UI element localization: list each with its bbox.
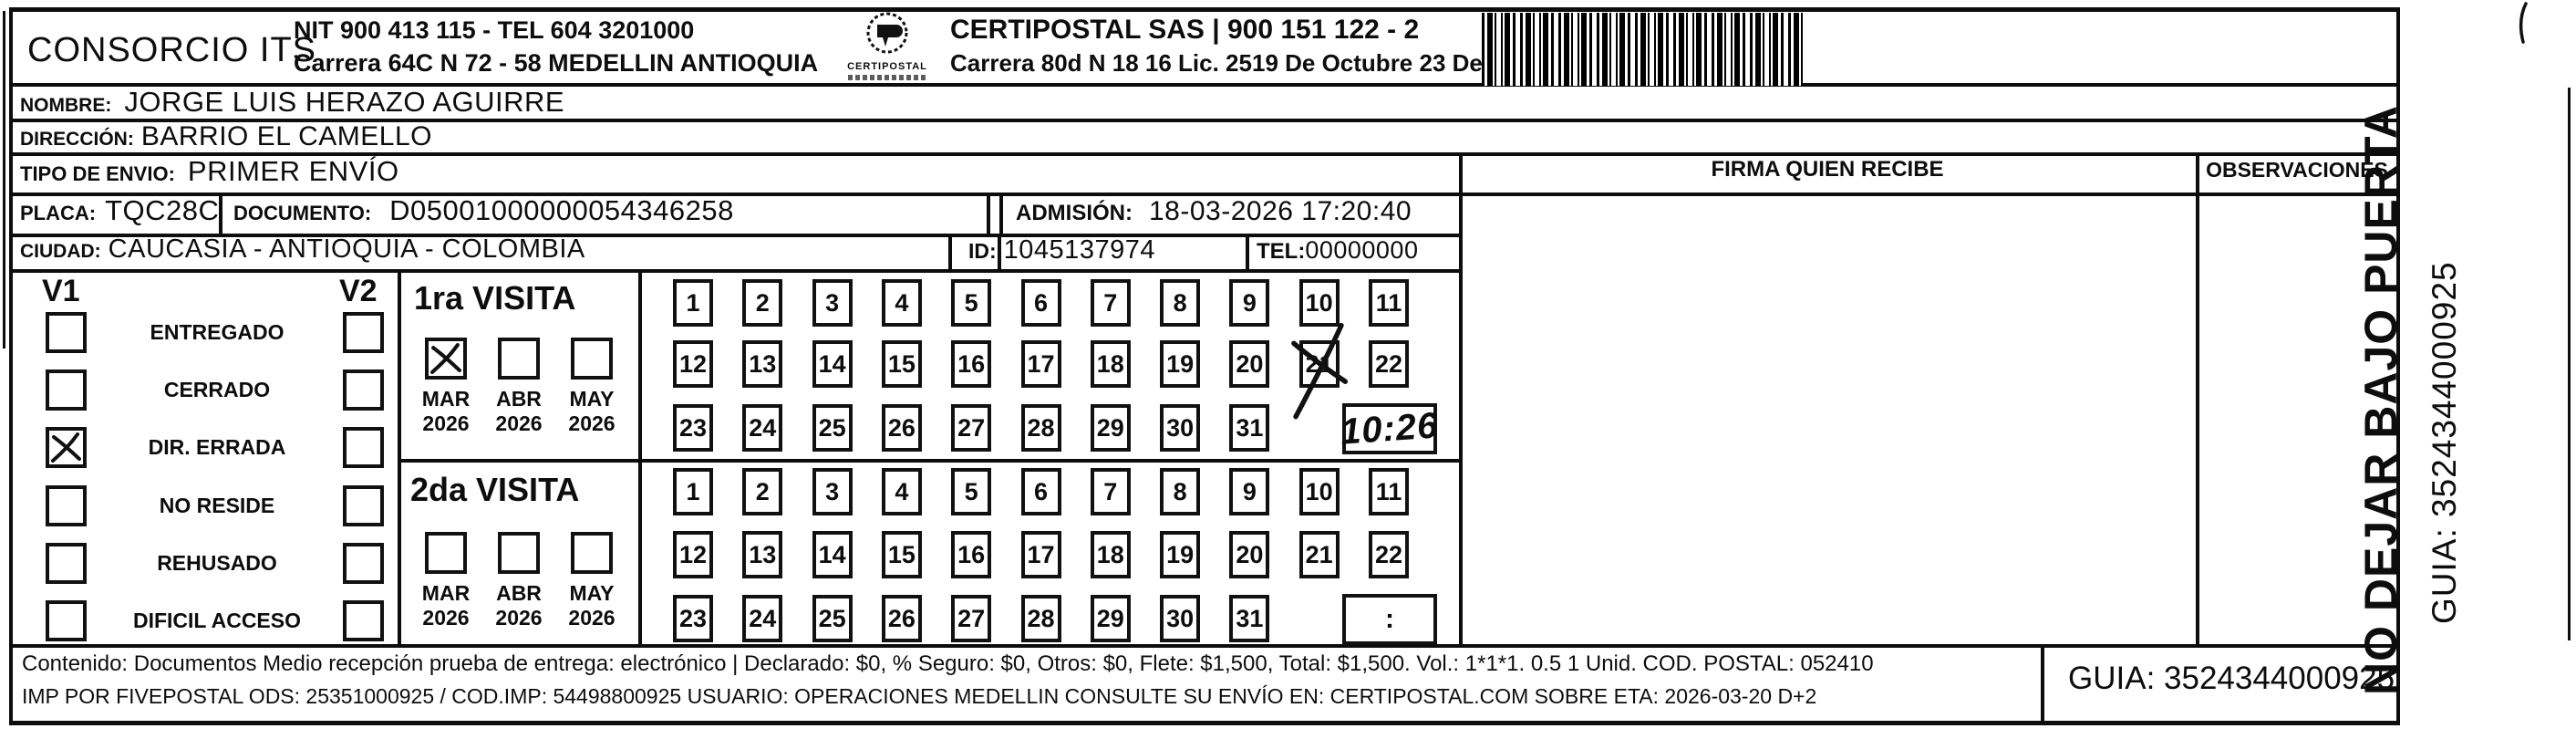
status-row-dir-errada: DIR. ERRADA — [13, 427, 398, 469]
ciudad-value: CAUCASIA - ANTIOQUIA - COLOMBIA — [109, 234, 585, 265]
footer-contenido-line: Contenido: Documentos Medio recepción pr… — [22, 651, 1874, 677]
visit2-day-31-box[interactable]: 31 — [1229, 595, 1269, 642]
visit2-day-19-box[interactable]: 19 — [1160, 531, 1200, 578]
month-year: 2026 — [422, 606, 469, 630]
visit1-day-22-box[interactable]: 22 — [1369, 340, 1409, 388]
visit2-day-9-box[interactable]: 9 — [1229, 468, 1269, 515]
visit2-day-14-box[interactable]: 14 — [812, 531, 853, 578]
visit1-day-26-box[interactable]: 26 — [882, 404, 922, 452]
placa-label: PLACA: — [20, 202, 96, 225]
month-may-checkbox[interactable] — [571, 532, 613, 574]
month-label: ABR — [496, 581, 542, 606]
visit2-time-box[interactable]: : — [1342, 594, 1437, 645]
visit1-day-31-box[interactable]: 31 — [1229, 404, 1269, 452]
visit1-day-6-box[interactable]: 6 — [1021, 279, 1061, 327]
documento-value: D05001000000054346258 — [389, 194, 734, 227]
visit2-day-15-box[interactable]: 15 — [882, 531, 922, 578]
status-label-dir-errada: DIR. ERRADA — [97, 435, 337, 460]
v1-no-reside-checkbox[interactable] — [46, 485, 87, 526]
visit1-day-7-box[interactable]: 7 — [1091, 279, 1131, 327]
line — [9, 269, 1463, 273]
v2-dir-errada-checkbox[interactable] — [343, 427, 384, 468]
visit1-time-value: 10:26 — [1340, 405, 1440, 453]
direccion-value: BARRIO EL CAMELLO — [141, 121, 432, 152]
status-label-cerrado: CERRADO — [97, 378, 337, 402]
visit1-months: MAR2026ABR2026MAY2026 — [401, 338, 638, 453]
visit2-day-5-box[interactable]: 5 — [951, 468, 991, 515]
month-year: 2026 — [422, 411, 469, 436]
admision-field: ADMISIÓN: 18-03-2026 17:20:40 — [1016, 196, 1412, 227]
visit2-day-22-box[interactable]: 22 — [1369, 531, 1409, 578]
visit2-months: MAR2026ABR2026MAY2026 — [401, 532, 638, 647]
v1-dir-errada-checkbox[interactable] — [46, 427, 87, 468]
footer-guia: GUIA: 3524344000925 — [2068, 661, 2395, 697]
visit1-day-30-box[interactable]: 30 — [1160, 404, 1200, 452]
v2-dificil-acceso-checkbox[interactable] — [343, 600, 384, 641]
visit1-day-1-box[interactable]: 1 — [673, 279, 713, 327]
visit2-day-8-box[interactable]: 8 — [1160, 468, 1200, 515]
logo-caption: CERTIPOSTAL — [837, 61, 937, 72]
visit2-day-25-box[interactable]: 25 — [812, 595, 853, 642]
ciudad-label: CIUDAD: — [20, 241, 101, 263]
id-label: ID: — [968, 239, 997, 264]
month-mar-checkbox[interactable] — [425, 532, 467, 574]
month-mar-checkbox[interactable] — [425, 338, 467, 380]
scan-edge-artifact — [2568, 88, 2571, 640]
month-label: MAY — [570, 581, 615, 606]
company-nit-tel: NIT 900 413 115 - TEL 604 3201000 — [294, 16, 694, 45]
line — [219, 193, 222, 237]
month-label: MAR — [422, 581, 470, 606]
visit1-day-14-box[interactable]: 14 — [812, 340, 853, 388]
month-year: 2026 — [568, 606, 615, 630]
partner-address: Carrera 80d N 18 16 Lic. 2519 De Octubre… — [950, 49, 1542, 78]
visit2-day-4-box[interactable]: 4 — [882, 468, 922, 515]
id-value: 1045137974 — [1004, 235, 1155, 265]
visit1-day-28-box[interactable]: 28 — [1021, 404, 1061, 452]
status-row-dificil-acceso: DIFICIL ACCESO — [13, 600, 398, 642]
visit1-title: 1ra VISITA — [414, 279, 575, 317]
status-label-no-reside: NO RESIDE — [97, 494, 337, 518]
visit1-day-20-box[interactable]: 20 — [1229, 340, 1269, 388]
status-row-rehusado: REHUSADO — [13, 543, 398, 585]
visit2-month-abr: ABR2026 — [483, 532, 554, 630]
month-label: ABR — [496, 387, 542, 411]
tipo-envio-label: TIPO DE ENVIO: — [20, 162, 175, 186]
footer-imp-line: IMP POR FIVEPOSTAL ODS: 25351000925 / CO… — [22, 684, 1816, 709]
visit2-day-3-box[interactable]: 3 — [812, 468, 853, 515]
visit2-day-12-box[interactable]: 12 — [673, 531, 713, 578]
admision-value: 18-03-2026 17:20:40 — [1149, 196, 1412, 227]
visit2-day-17-box[interactable]: 17 — [1021, 531, 1061, 578]
ciudad-field: CIUDAD: CAUCASIA - ANTIOQUIA - COLOMBIA — [20, 234, 585, 265]
documento-field: DOCUMENTO: D05001000000054346258 — [233, 194, 734, 227]
visit1-day-11-box[interactable]: 11 — [1369, 279, 1409, 327]
placa-value: TQC28C — [105, 194, 219, 227]
direccion-field: DIRECCIÓN: BARRIO EL CAMELLO — [20, 121, 432, 152]
firma-signature-area[interactable] — [1463, 196, 2196, 644]
scan-edge-artifact — [3, 11, 5, 349]
logo-fineprint-smudge — [848, 75, 926, 80]
month-abr-checkbox[interactable] — [498, 532, 540, 574]
visit1-day-19-box[interactable]: 19 — [1160, 340, 1200, 388]
month-year: 2026 — [495, 606, 542, 630]
status-label-rehusado: REHUSADO — [97, 551, 337, 576]
partner-name: CERTIPOSTAL SAS | 900 151 122 - 2 — [950, 15, 1419, 46]
scan-mark-artifact — [2515, 2, 2531, 44]
visit2-day-13-box[interactable]: 13 — [742, 531, 782, 578]
v1-entregado-checkbox[interactable] — [46, 312, 87, 353]
v1-cerrado-checkbox[interactable] — [46, 369, 87, 411]
visit1-month-may: MAY2026 — [556, 338, 627, 436]
visit2-day-7-box[interactable]: 7 — [1091, 468, 1131, 515]
month-year: 2026 — [568, 411, 615, 436]
visit1-day-5-box[interactable]: 5 — [951, 279, 991, 327]
tel-value: 00000000 — [1305, 236, 1418, 265]
month-may-checkbox[interactable] — [571, 338, 613, 380]
v1-dificil-acceso-checkbox[interactable] — [46, 600, 87, 641]
line — [638, 269, 642, 644]
v2-no-reside-checkbox[interactable] — [343, 485, 384, 526]
visit2-day-30-box[interactable]: 30 — [1160, 595, 1200, 642]
nombre-label: NOMBRE: — [20, 95, 111, 117]
month-abr-checkbox[interactable] — [498, 338, 540, 380]
status-row-no-reside: NO RESIDE — [13, 485, 398, 527]
visit2-day-20-box[interactable]: 20 — [1229, 531, 1269, 578]
visit1-time-box[interactable]: 10:26 — [1342, 403, 1437, 454]
tel-field: TEL: 00000000 — [1257, 236, 1418, 265]
nombre-value: JORGE LUIS HERAZO AGUIRRE — [124, 86, 564, 119]
visit1-day-18-box[interactable]: 18 — [1091, 340, 1131, 388]
firma-column-header: FIRMA QUIEN RECIBE — [1463, 157, 2192, 182]
visit1-month-abr: ABR2026 — [483, 338, 554, 436]
visit1-day-12-box[interactable]: 12 — [673, 340, 713, 388]
visit2-day-16-box[interactable]: 16 — [951, 531, 991, 578]
line — [948, 234, 952, 273]
visit2-month-may: MAY2026 — [556, 532, 627, 630]
documento-label: DOCUMENTO: — [233, 202, 371, 225]
visit1-day-4-box[interactable]: 4 — [882, 279, 922, 327]
v2-entregado-checkbox[interactable] — [343, 312, 384, 353]
visit1-day-9-box[interactable]: 9 — [1229, 279, 1269, 327]
visit2-month-mar: MAR2026 — [410, 532, 481, 630]
line — [2041, 644, 2044, 724]
visit1-day-27-box[interactable]: 27 — [951, 404, 991, 452]
status-row-cerrado: CERRADO — [13, 369, 398, 411]
visit2-day-26-box[interactable]: 26 — [882, 595, 922, 642]
visit2-day-21-box[interactable]: 21 — [1299, 531, 1340, 578]
visit1-day-21-box[interactable]: 21 — [1299, 340, 1340, 388]
visit1-day-2-box[interactable]: 2 — [742, 279, 782, 327]
status-label-entregado: ENTREGADO — [97, 320, 337, 345]
line — [987, 193, 990, 237]
side-note-guia: GUIA: 3524344000925 — [2426, 261, 2464, 624]
company-address: Carrera 64C N 72 - 58 MEDELLIN ANTIOQUIA — [294, 49, 818, 78]
visit2-day-10-box[interactable]: 10 — [1299, 468, 1340, 515]
visit1-day-8-box[interactable]: 8 — [1160, 279, 1200, 327]
tracking-barcode — [1482, 13, 1803, 86]
visit1-day-23-box[interactable]: 23 — [673, 404, 713, 452]
line — [398, 459, 1463, 463]
tel-label: TEL: — [1257, 239, 1305, 265]
visit1-day-25-box[interactable]: 25 — [812, 404, 853, 452]
tipo-envio-value: PRIMER ENVÍO — [188, 155, 399, 188]
visit1-day-3-box[interactable]: 3 — [812, 279, 853, 327]
certipostal-logo: CERTIPOSTAL — [837, 7, 937, 84]
placa-field: PLACA: TQC28C — [20, 194, 219, 227]
month-label: MAR — [422, 387, 470, 411]
line — [999, 193, 1003, 237]
visit1-day-16-box[interactable]: 16 — [951, 340, 991, 388]
nombre-field: NOMBRE: JORGE LUIS HERAZO AGUIRRE — [20, 86, 564, 119]
line — [9, 7, 2400, 12]
visit2-day-18-box[interactable]: 18 — [1091, 531, 1131, 578]
visit1-day-24-box[interactable]: 24 — [742, 404, 782, 452]
visit1-day-13-box[interactable]: 13 — [742, 340, 782, 388]
visit1-day-17-box[interactable]: 17 — [1021, 340, 1061, 388]
visit2-day-27-box[interactable]: 27 — [951, 595, 991, 642]
visit2-day-1-box[interactable]: 1 — [673, 468, 713, 515]
company-name: CONSORCIO ITS — [27, 31, 316, 70]
visit2-day-11-box[interactable]: 11 — [1369, 468, 1409, 515]
line — [1246, 234, 1249, 273]
visit2-day-23-box[interactable]: 23 — [673, 595, 713, 642]
v2-cerrado-checkbox[interactable] — [343, 369, 384, 411]
visit2-day-28-box[interactable]: 28 — [1021, 595, 1061, 642]
status-label-dificil-acceso: DIFICIL ACCESO — [97, 609, 337, 633]
side-note-no-dejar: NO DEJAR BAJO PUERTA — [2354, 105, 2407, 695]
visit2-day-6-box[interactable]: 6 — [1021, 468, 1061, 515]
visit2-title: 2da VISITA — [410, 471, 579, 509]
status-row-entregado: ENTREGADO — [13, 312, 398, 354]
v2-rehusado-checkbox[interactable] — [343, 543, 384, 584]
visit2-time-value: : — [1385, 604, 1394, 635]
month-label: MAY — [570, 387, 615, 411]
visit1-day-10-box[interactable]: 10 — [1299, 279, 1340, 327]
visit2-day-24-box[interactable]: 24 — [742, 595, 782, 642]
admision-label: ADMISIÓN: — [1016, 201, 1133, 226]
visit1-day-15-box[interactable]: 15 — [882, 340, 922, 388]
direccion-label: DIRECCIÓN: — [20, 129, 134, 151]
tipo-envio-field: TIPO DE ENVIO: PRIMER ENVÍO — [20, 155, 399, 188]
visit2-day-29-box[interactable]: 29 — [1091, 595, 1131, 642]
visit2-day-2-box[interactable]: 2 — [742, 468, 782, 515]
v1-rehusado-checkbox[interactable] — [46, 543, 87, 584]
status-rows: ENTREGADOCERRADODIR. ERRADANO RESIDEREHU… — [13, 275, 398, 644]
visit1-month-mar: MAR2026 — [410, 338, 481, 436]
month-year: 2026 — [495, 411, 542, 436]
visit1-day-29-box[interactable]: 29 — [1091, 404, 1131, 452]
scanned-delivery-guide: CONSORCIO ITS NIT 900 413 115 - TEL 604 … — [0, 0, 2576, 739]
postal-stamp-icon — [837, 7, 937, 58]
id-field: ID: 1045137974 — [968, 235, 1155, 265]
